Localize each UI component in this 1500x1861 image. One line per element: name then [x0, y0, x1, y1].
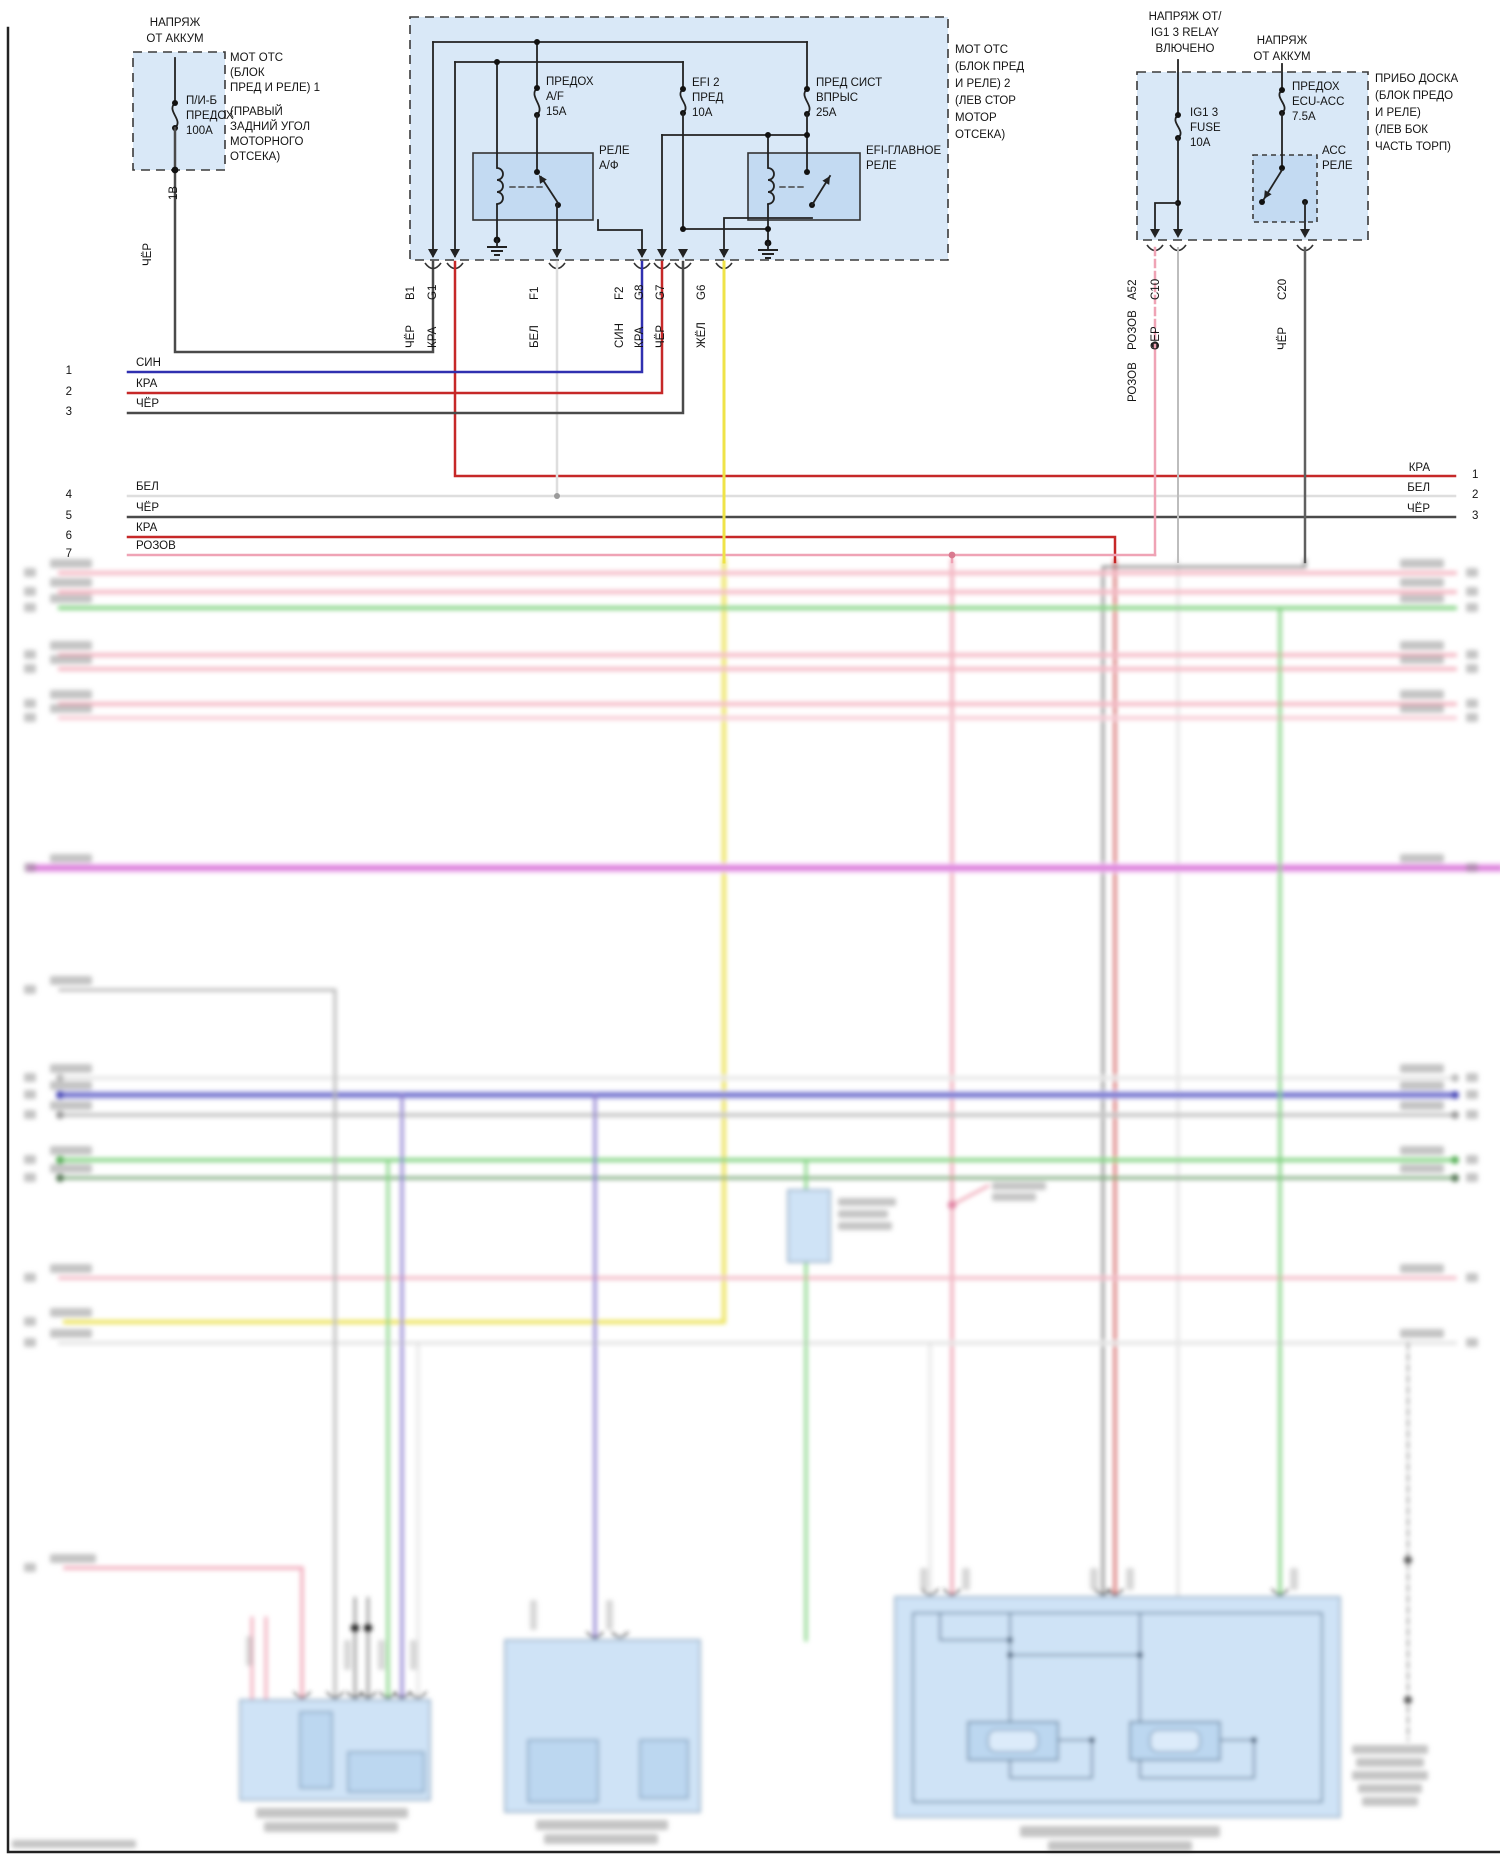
wire-color-label: КРА	[1360, 461, 1430, 476]
relay-af-label: А/Ф	[599, 159, 619, 174]
feed-battery2-label: ОТ АККУМ	[1232, 50, 1332, 65]
dash-box-location: ЧАСТЬ ТОРП)	[1375, 140, 1451, 155]
fuse-af-label: ПРЕДОХ	[546, 75, 594, 90]
row-number: 3	[56, 405, 72, 420]
dash-box-name: ПРИБО ДОСКА	[1375, 72, 1458, 87]
pin-label: G1	[426, 285, 440, 300]
row-number: 4	[56, 488, 72, 503]
relay-efi-label: EFI-ГЛАВНОЕ	[866, 144, 941, 159]
relay-acc-label: РЕЛЕ	[1322, 159, 1353, 174]
wire-color-label: СИН	[613, 323, 627, 348]
fuse-ig13-label: IG1 3	[1190, 106, 1218, 121]
fuse-ecu-acc-label: 7.5А	[1292, 110, 1316, 125]
pin-label: C20	[1276, 279, 1290, 300]
box1-name: (БЛОК	[230, 66, 265, 81]
relay-af-label: РЕЛЕ	[599, 144, 630, 159]
relay-efi-label: РЕЛЕ	[866, 159, 897, 174]
box1-location: МОТОРНОГО	[230, 135, 303, 150]
row-number: 2	[56, 385, 72, 400]
relay-acc-label: АСС	[1322, 144, 1346, 159]
fuse-efi2-label: 10А	[692, 106, 712, 121]
box1-name: МОТ ОТС	[230, 51, 283, 66]
wire-color-label: ЧЁР	[1276, 327, 1290, 350]
fuse-inj-label: ПРЕД СИСТ	[816, 76, 882, 91]
pin-label: F1	[528, 287, 542, 300]
feed-battery-label: НАПРЯЖ	[115, 16, 235, 31]
wire-color-label: ЧЁР	[404, 325, 418, 348]
box1-location: ОТСЕКА)	[230, 150, 280, 165]
wire-color-label: БЕЛ	[136, 480, 159, 495]
fuse-100a-label: П/И-Б	[186, 94, 217, 109]
feed-ig1-label: IG1 3 RELAY	[1125, 26, 1245, 41]
fuse-af-label: 15А	[546, 105, 566, 120]
wire-color-label: ЧЁР	[136, 397, 159, 412]
wire-color-label: РОЗОВ	[136, 539, 176, 554]
row-number: 1	[56, 364, 72, 379]
box2-name: (БЛОК ПРЕД	[955, 60, 1024, 75]
pin-label: A52	[1126, 280, 1140, 300]
dash-box-name: (БЛОК ПРЕДО	[1375, 89, 1453, 104]
pin-label: C10	[1149, 279, 1163, 300]
wire-color-label: КРА	[136, 377, 157, 392]
wire-color-label: ЧЁР	[136, 501, 159, 516]
row-number: 3	[1472, 509, 1478, 524]
fuse-ecu-acc-label: ПРЕДОХ	[1292, 80, 1340, 95]
row-number: 7	[56, 547, 72, 562]
row-number: 5	[56, 509, 72, 524]
pin-label: G8	[633, 285, 647, 300]
feed-ig1-label: ВЛЮЧЕНО	[1125, 42, 1245, 57]
fuse-ig13-label: 10А	[1190, 136, 1210, 151]
dash-box-location: (ЛЕВ БОК	[1375, 123, 1428, 138]
row-number: 1	[1472, 468, 1478, 483]
wiring-svg	[0, 0, 1500, 1861]
fuse-ig13-label: FUSE	[1190, 121, 1221, 136]
wire-color-label: КРА	[426, 327, 440, 348]
wire-color-label: СИН	[136, 356, 161, 371]
fuse-efi2-label: EFI 2	[692, 76, 719, 91]
wire-color-label: БЕЛ	[528, 325, 542, 348]
fuse-efi2-label: ПРЕД	[692, 91, 723, 106]
feed-battery-label: ОТ АККУМ	[115, 32, 235, 47]
wire-color-label: ЖЁЛ	[695, 322, 709, 348]
pin-label: G7	[654, 285, 668, 300]
box2-name: МОТ ОТС	[955, 43, 1008, 58]
fuse-100a-label: 100А	[186, 124, 213, 139]
wire-color-label: РОЗОВ	[1126, 310, 1140, 350]
feed-battery2-label: НАПРЯЖ	[1232, 34, 1332, 49]
box2-location: ОТСЕКА)	[955, 128, 1005, 143]
row-number: 6	[56, 529, 72, 544]
pin-label: G6	[695, 285, 709, 300]
wire-color-label: КРА	[136, 521, 157, 536]
row-number: 2	[1472, 488, 1478, 503]
box1-location: ЗАДНИЙ УГОЛ	[230, 120, 310, 135]
wire-color-label: ЧЁР	[654, 325, 668, 348]
box1-location: (ПРАВЫЙ	[230, 105, 283, 120]
dash-box-name: И РЕЛЕ)	[1375, 106, 1421, 121]
wiring-diagram-page: НАПРЯЖ ОТ АККУМ П/И-Б ПРЕДОХ 100А МОТ ОТ…	[0, 0, 1500, 1861]
wire-color-label: ЧЁР	[1360, 502, 1430, 517]
fuse-ecu-acc-label: ECU-ACC	[1292, 95, 1344, 110]
box2-name: И РЕЛЕ) 2	[955, 77, 1010, 92]
wire-id-1v: 1В	[167, 186, 181, 200]
box2-location: (ЛЕВ СТОР	[955, 94, 1016, 109]
fuse-inj-label: ВПРЫС	[816, 91, 858, 106]
pin-label: F2	[613, 287, 627, 300]
wire-color-label: БЕЛ	[1360, 481, 1430, 496]
fuse-inj-label: 25А	[816, 106, 836, 121]
feed-ig1-label: НАПРЯЖ ОТ/	[1125, 10, 1245, 25]
pin-label: B1	[404, 286, 418, 300]
blurred-lower-section	[12, 559, 1500, 1851]
fuse-af-label: A/F	[546, 90, 564, 105]
fuse-100a-label: ПРЕДОХ	[186, 109, 234, 124]
wire-color-label: СЕР	[1149, 326, 1163, 350]
wire-color-cher: ЧЁР	[141, 243, 155, 266]
wire-color-label: КРА	[633, 327, 647, 348]
wire-color-label: РОЗОВ	[1126, 362, 1140, 402]
box1-name: ПРЕД И РЕЛЕ) 1	[230, 81, 320, 96]
box2-location: МОТОР	[955, 111, 997, 126]
